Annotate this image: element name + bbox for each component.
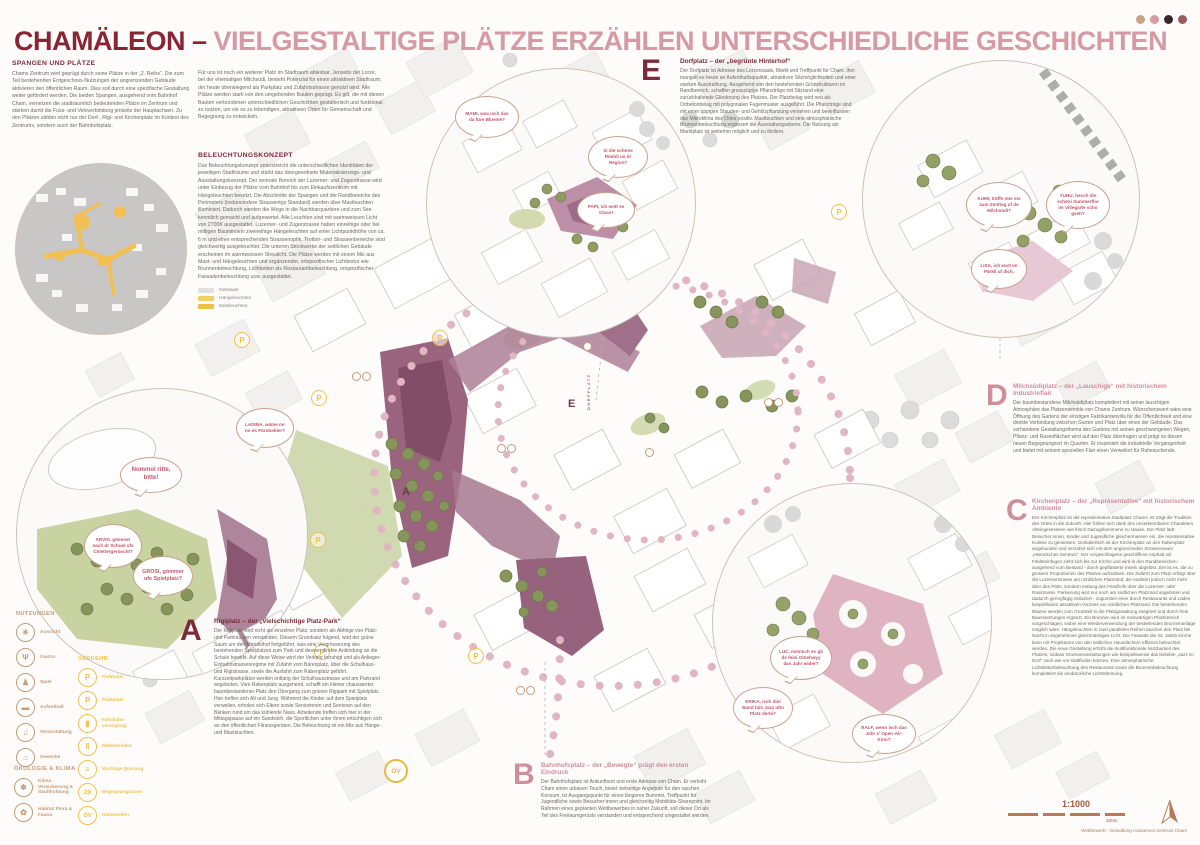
legend-item-parkhaus: PParkhaus [78, 668, 144, 687]
speech-bubble: GROSI, gömmer ufe Spielplatz? [133, 556, 193, 596]
intro-column-2: Für uns ist noch ein weiterer Platz im S… [198, 70, 384, 122]
section-letter-e: E [641, 56, 661, 86]
lighting-heading: BELEUCHTUNGSKONZEPT [198, 152, 386, 159]
brand-dots [1136, 15, 1187, 24]
speech-bubble: ERIKA, isch dini Band bim Jazz ufm Platz… [733, 687, 793, 729]
scale-segment [1070, 813, 1100, 816]
fahrbahnverengung-icon: ▮ [78, 714, 97, 733]
scale-segment [1043, 813, 1065, 816]
legend-item-haltestellen: ÖVHaltestellen [78, 806, 144, 825]
legend-label: Gastro [40, 655, 55, 661]
lighting-legend: Gebäude Hängeleuchten Mastleuchten [198, 288, 386, 309]
legend-item-gewerbe: ⌂Gewerbe [16, 748, 74, 767]
intro-column-1: SPANGEN UND PLÄTZE Chams Zentrum wird ge… [12, 60, 192, 130]
legend-label: Parkhaus [102, 675, 124, 681]
legend-item-mittelstreifen: ‖Mittelstreifen [78, 737, 144, 756]
legend-oekologie: ÖKOLOGIE & KLIMA ❄Klima Versickerung & S… [14, 766, 76, 828]
amenity-icon [497, 444, 506, 453]
public-transport-icon: ÖV [384, 759, 408, 783]
section-letter-d: D [986, 381, 1008, 411]
legend-label: Hängeleuchten [219, 296, 251, 301]
legend-item-querung: ≡Wichtige Querung [78, 760, 144, 779]
speech-bubble: KUMI, träffe mer eis zum Zmittag uf de M… [966, 182, 1032, 228]
section-title-d: Milchsüdiplatz – der „Lauschige“ mit his… [1013, 383, 1195, 397]
legend-item-aussicht: ☀Aussicht [16, 623, 74, 642]
parkplatz-icon: P [78, 691, 97, 710]
parking-icon: P [831, 204, 847, 220]
querung-icon: ≡ [78, 760, 97, 779]
section-letter-a: A [180, 616, 202, 646]
amenity-icon [645, 448, 654, 457]
section-dorfplatz: Dorfplatz – der „begrünte Hinterhof“ Der… [680, 58, 858, 136]
amenity-icon [516, 686, 525, 695]
title-secondary: VIELGESTALTIGE PLÄTZE ERZÄHLEN UNTERSCHI… [214, 26, 1168, 56]
section-kirchenplatz: Kirchenplatz – der „Repräsentative“ mit … [1032, 498, 1196, 677]
rigiplatz-label: RIGIPLATZ [415, 498, 420, 558]
dot-icon [1136, 15, 1145, 24]
legend-item-parkplatz: PParkplatz [78, 691, 144, 710]
mastleuchten-swatch-icon [198, 304, 214, 309]
legend-row-haengeleuchten: Hängeleuchten [198, 296, 386, 301]
amenity-icon [362, 372, 371, 381]
section-title-e: Dorfplatz – der „begrünte Hinterhof“ [680, 58, 858, 65]
gastro-icon: Ψ [16, 648, 35, 667]
speech-bubble: PAPI, ich wott es Glace! [577, 192, 635, 228]
legend-nutzungen: NUTZUNGEN ☀Aussicht ΨGastro ♟Spiel ▬Aufe… [16, 611, 74, 773]
speech-bubble: LADINA, wäme mr no es Fürobebier? [236, 408, 294, 448]
intro-text-1: Chams Zentrum wird geprägt durch seine P… [12, 71, 192, 130]
legend-label: Wichtige Querung [102, 767, 143, 773]
legend-label: Begegnungszone [102, 790, 142, 796]
title-primary: CHAMÄLEON – [14, 26, 207, 56]
poster-canvas: CHAMÄLEON – VIELGESTALTIGE PLÄTZE ERZÄHL… [0, 0, 1200, 845]
intro-text-2: Für uns ist noch ein weiterer Platz im S… [198, 70, 384, 122]
north-arrow-icon [1158, 798, 1182, 826]
gewerbe-icon: ⌂ [16, 748, 35, 767]
section-body-a: Der Rigiplatz wird nicht als einzelner P… [214, 628, 382, 737]
dot-icon [1178, 15, 1187, 24]
amenity-icon [583, 342, 592, 351]
section-body-c: Der Kirchenplatz ist der repräsentative … [1032, 515, 1196, 677]
legend-label: Aufenthalt [40, 705, 64, 711]
section-title-c: Kirchenplatz – der „Repräsentative“ mit … [1032, 498, 1196, 512]
legend-label: Gewerbe [40, 755, 60, 761]
legend-item-gastro: ΨGastro [16, 648, 74, 667]
amenity-icon [507, 444, 516, 453]
dorfplatz-label: DORFPLATZ [586, 350, 591, 410]
legend-verkehr-heading: VERKEHR [78, 656, 144, 662]
section-rigiplatz: Rigiplatz – der „vielschichtige Platz-Pa… [214, 618, 382, 737]
speech-bubble: YUHU, hesch die schöni Summerflor im Vil… [1046, 181, 1110, 229]
lighting-plan-circle [15, 163, 187, 335]
klima-icon: ❄ [14, 778, 33, 797]
legend-item-klima: ❄Klima Versickerung & Stadtkühlung [14, 778, 76, 797]
scale-bar [1008, 813, 1125, 816]
section-bahnhofsplatz: Bahnhofsplatz – der „Bewegte“ prägt den … [541, 762, 711, 820]
amenity-icon [774, 398, 783, 407]
legend-label: Aussicht [40, 630, 60, 636]
legend-nutzungen-heading: NUTZUNGEN [16, 611, 74, 617]
intro-heading: SPANGEN UND PLÄTZE [12, 60, 192, 67]
gebaeude-swatch-icon [198, 288, 214, 293]
haengeleuchten-swatch-icon [198, 296, 214, 301]
amenity-icon [352, 372, 361, 381]
habitat-icon: ✿ [14, 803, 33, 822]
aussicht-icon: ☀ [16, 623, 35, 642]
parking-icon: P [311, 390, 327, 406]
legend-label: Mittelstreifen [102, 744, 132, 750]
scale-segment [1008, 813, 1038, 816]
speech-bubble: LUC, meinsch es git de feini Glüehwyy da… [770, 636, 832, 680]
legend-item-aufenthalt: ▬Aufenthalt [16, 698, 74, 717]
map-marker-e: E [568, 398, 575, 410]
section-letter-c: C [1006, 496, 1028, 526]
section-title-b: Bahnhofsplatz – der „Bewegte“ prägt den … [541, 762, 711, 776]
parkhaus-icon: P [78, 668, 97, 687]
begegnungszone-icon: 20 [78, 783, 97, 802]
haltestellen-icon: ÖV [78, 806, 97, 825]
parking-icon: P [468, 648, 484, 664]
legend-oekologie-heading: ÖKOLOGIE & KLIMA [14, 766, 76, 772]
section-body-d: Der baumbestandene Milchsüdiplatz komple… [1013, 400, 1195, 454]
section-letter-b: B [513, 760, 535, 790]
legend-label: Klima Versickerung & Stadtkühlung [38, 779, 76, 796]
legend-row-gebaeude: Gebäude [198, 288, 386, 293]
scale-unit-label: 100m [1106, 818, 1118, 823]
speech-bubble: MAMI, was isch das da füre Blueme? [455, 96, 519, 138]
legend-item-begegnungszone: 20Begegnungszone [78, 783, 144, 802]
speech-bubble: RALF, wenn isch das Jahr s' Open-Air-Kin… [852, 714, 916, 754]
section-milchsuediplatz: Milchsüdiplatz – der „Lauschige“ mit his… [1013, 383, 1195, 454]
veranstaltung-icon: ♫ [16, 723, 35, 742]
dot-icon [1164, 15, 1173, 24]
legend-label: Spiel [40, 680, 51, 686]
legend-label: Haltestellen [102, 813, 129, 819]
aufenthalt-icon: ▬ [16, 698, 35, 717]
scale-label: 1:1000 [1062, 799, 1090, 809]
legend-item-veranstaltung: ♫Veranstaltung [16, 723, 74, 742]
speech-bubble: LISA, ich wart im Pärkli uf dich. [971, 249, 1027, 289]
section-body-e: Der Dorfplatz ist Adresse des Lorzensaal… [680, 68, 858, 136]
legend-verkehr: VERKEHR PParkhaus PParkplatz ▮Fahrbahn- … [78, 656, 144, 829]
legend-label: Parkplatz [102, 698, 123, 704]
parking-icon: P [310, 532, 326, 548]
amenity-icon [764, 398, 773, 407]
scale-segment [1105, 813, 1125, 816]
legend-item-habitat: ✿Habitat Flora & Fauna [14, 803, 76, 822]
legend-label: Gebäude [219, 288, 239, 293]
section-body-b: Der Bahnhofsplatz ist Ankunftsort und er… [541, 779, 711, 820]
legend-label: Mastleuchten [219, 304, 248, 309]
amenity-icon [526, 686, 535, 695]
dot-icon [1150, 15, 1159, 24]
speech-bubble: Nommol ritte, bitte! [120, 457, 182, 493]
mittelstreifen-icon: ‖ [78, 737, 97, 756]
map-marker-a: A [402, 486, 410, 498]
lighting-concept-block: BELEUCHTUNGSKONZEPT Das Beleuchtungskonz… [198, 152, 386, 312]
section-title-a: Rigiplatz – der „vielschichtige Platz-Pa… [214, 618, 382, 625]
footer-credit: Wettbewerb - Gestaltung Autoarmes Zentru… [1081, 828, 1187, 833]
speech-bubble: ARVID, gömmer nach dr Schuel ufs Chlette… [84, 524, 142, 568]
page-title: CHAMÄLEON – VIELGESTALTIGE PLÄTZE ERZÄHL… [14, 26, 1167, 57]
lighting-text: Das Beleuchtungskonzept unterstreicht di… [198, 163, 386, 281]
legend-label: Fahrbahn- verengung [102, 718, 144, 730]
spiel-icon: ♟ [16, 673, 35, 692]
parking-icon: P [234, 332, 250, 348]
legend-item-fahrbahnverengung: ▮Fahrbahn- verengung [78, 714, 144, 733]
parking-icon: P [432, 330, 448, 346]
legend-item-spiel: ♟Spiel [16, 673, 74, 692]
speech-bubble: Si die schöne Rüebli us dr Region? [588, 136, 648, 178]
legend-row-mastleuchten: Mastleuchten [198, 304, 386, 309]
legend-label: Habitat Flora & Fauna [38, 807, 76, 819]
legend-label: Veranstaltung [40, 730, 72, 736]
